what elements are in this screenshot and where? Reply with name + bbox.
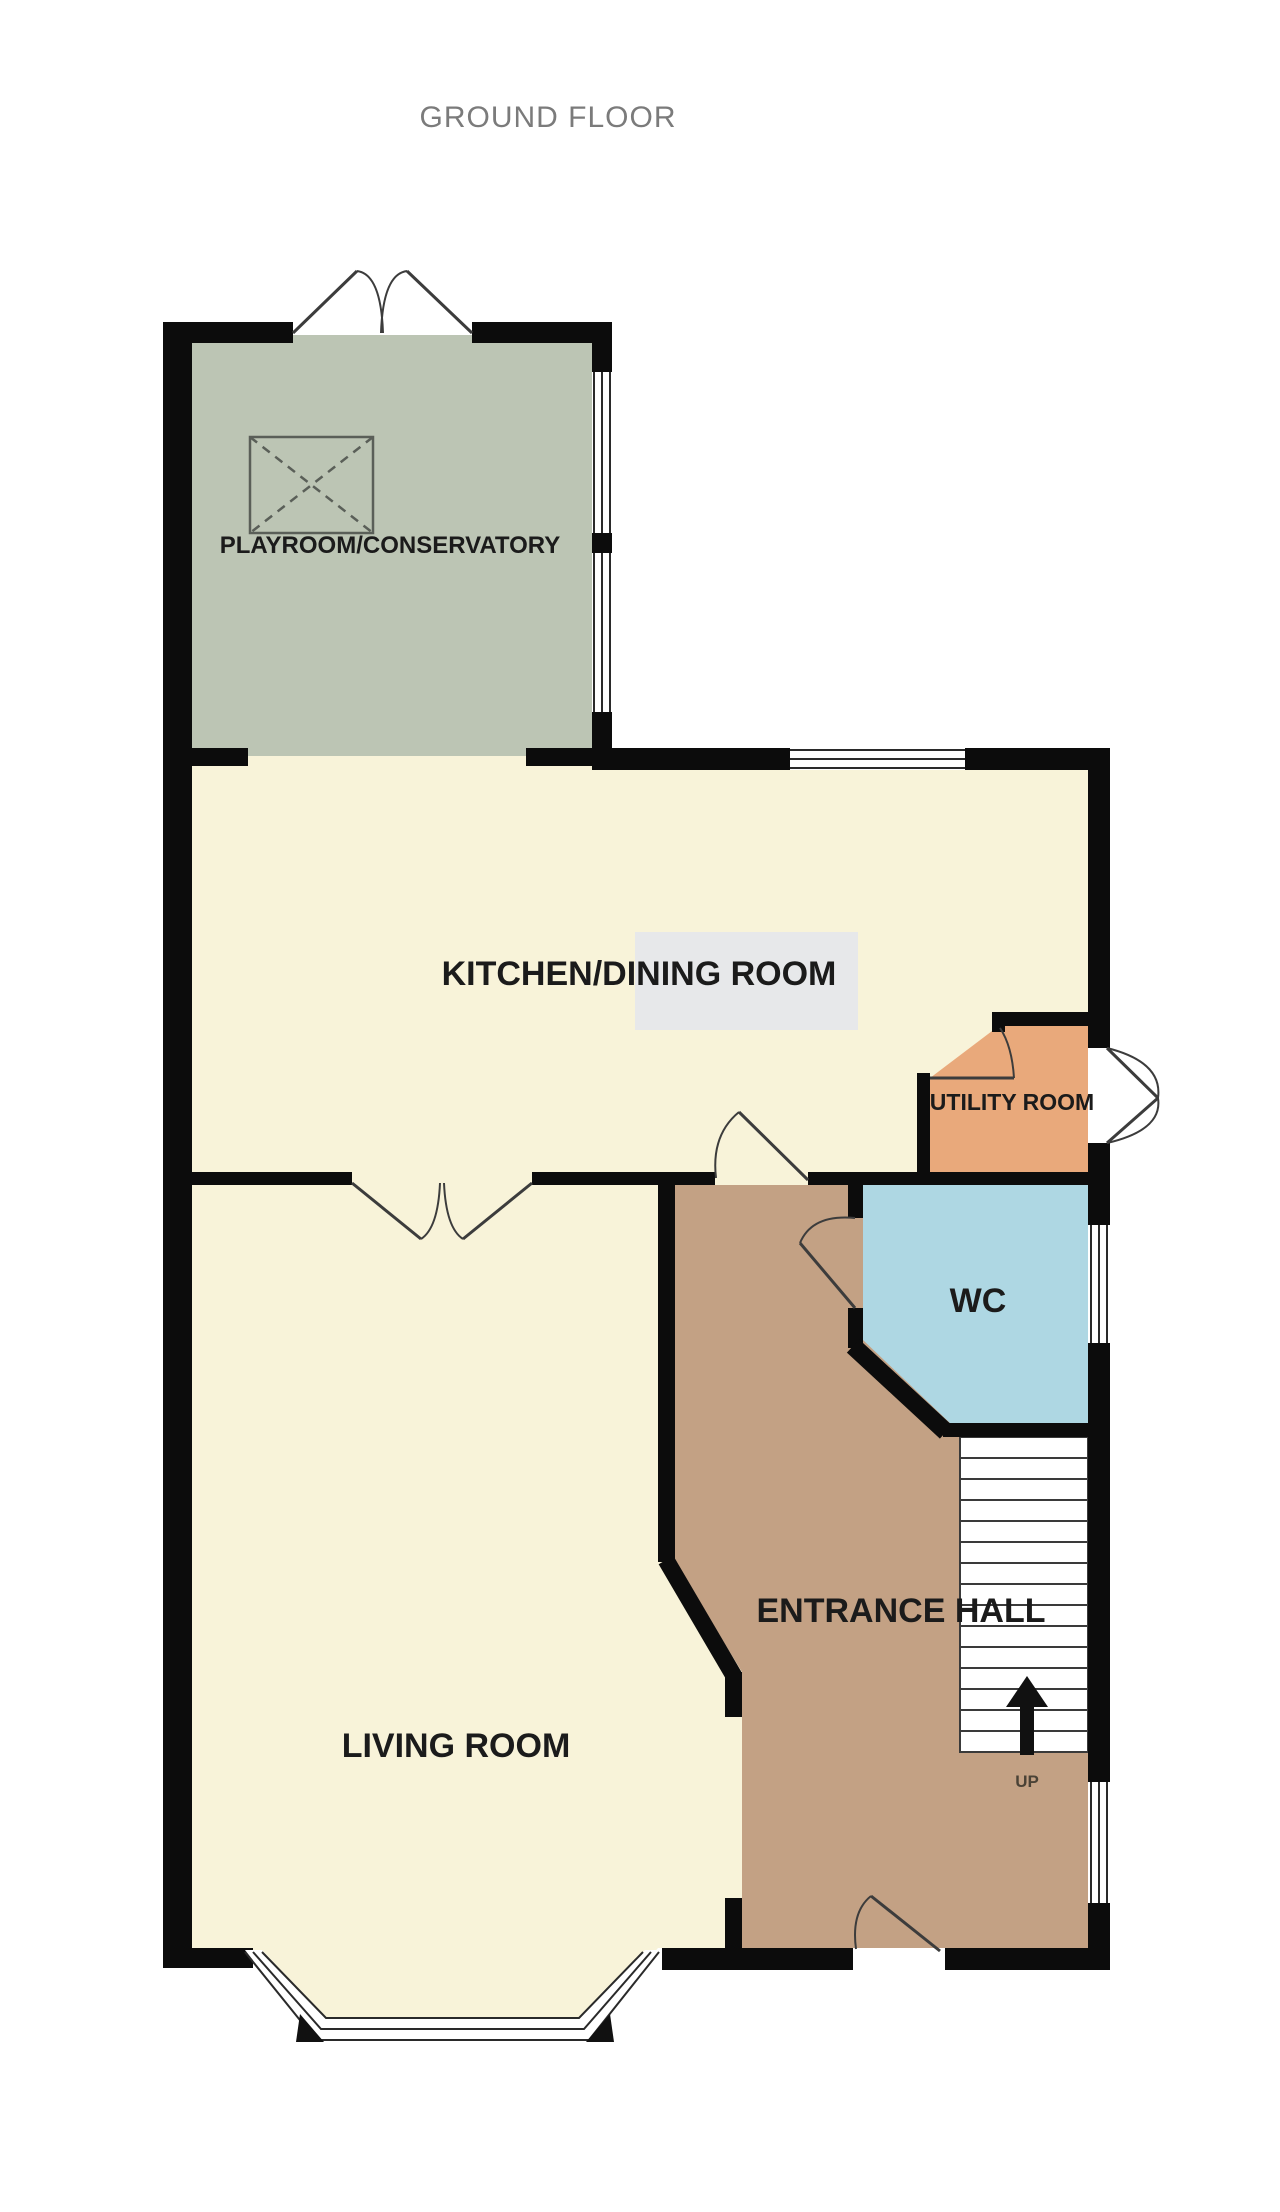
door-utility-exterior bbox=[1107, 1048, 1158, 1143]
room-label-living: LIVING ROOM bbox=[342, 1727, 571, 1765]
room-label-kitchen: KITCHEN/DINING ROOM bbox=[442, 955, 837, 993]
wall-mid-horizontal bbox=[808, 1172, 1110, 1185]
room-label-conservatory: PLAYROOM/CONSERVATORY bbox=[220, 532, 561, 559]
room-label-utility: UTILITY ROOM bbox=[930, 1089, 1094, 1115]
wall-wc-bottom bbox=[943, 1423, 1110, 1437]
wall-hall-divider-upper bbox=[658, 1185, 675, 1562]
stairs-up-label: UP bbox=[1015, 1772, 1039, 1791]
wall-kitchen-top-a bbox=[592, 748, 790, 770]
wall-hall-divider-mid bbox=[725, 1672, 742, 1717]
wall-left-exterior bbox=[163, 322, 192, 1968]
wall-right-utility-b bbox=[1088, 1143, 1110, 1225]
wall-conservatory-top-left bbox=[163, 322, 293, 343]
wall-wc-left-a bbox=[848, 1185, 863, 1218]
wall-bottom-a bbox=[662, 1948, 853, 1970]
window-wc-right bbox=[1088, 1225, 1110, 1343]
wall-conservatory-bottom-left-stub bbox=[190, 748, 248, 766]
wall-conservatory-top-right bbox=[472, 322, 612, 343]
room-label-hall: ENTRANCE HALL bbox=[757, 1592, 1046, 1630]
wall-utility-left-stub bbox=[917, 1073, 930, 1172]
window-hall-right bbox=[1088, 1782, 1110, 1903]
wall-right-stairs bbox=[1088, 1437, 1110, 1782]
wall-bottom-left bbox=[190, 1948, 253, 1968]
wall-conservatory-right-a bbox=[592, 322, 612, 372]
wall-kitchen-living-b bbox=[532, 1172, 715, 1185]
wall-kitchen-top-b bbox=[965, 748, 1110, 770]
wall-utility-top bbox=[992, 1012, 1110, 1026]
window-conservatory-right-lower bbox=[592, 553, 612, 712]
door-conservatory-french bbox=[293, 271, 472, 333]
wall-bottom-b bbox=[945, 1948, 1110, 1970]
wall-utility-door-post bbox=[992, 1012, 1005, 1032]
room-label-wc: WC bbox=[950, 1282, 1007, 1320]
window-kitchen-top bbox=[790, 748, 965, 770]
wall-right-utility-a bbox=[1088, 1025, 1110, 1048]
page-title: GROUND FLOOR bbox=[419, 101, 676, 134]
wall-hall-divider-lower-stub bbox=[725, 1898, 742, 1948]
wall-right-kitchen bbox=[1088, 770, 1110, 1025]
floorplan-drawing: GROUND FLOOR PLAYROOM/CONSERVATORY KITCH… bbox=[0, 0, 1280, 2212]
window-conservatory-right-upper bbox=[592, 372, 612, 533]
floorplan-page: GROUND FLOOR PLAYROOM/CONSERVATORY KITCH… bbox=[0, 0, 1280, 2212]
wall-kitchen-living-a bbox=[190, 1172, 352, 1185]
wall-right-wc-lower bbox=[1088, 1343, 1110, 1437]
wall-conservatory-right-b bbox=[592, 533, 612, 554]
